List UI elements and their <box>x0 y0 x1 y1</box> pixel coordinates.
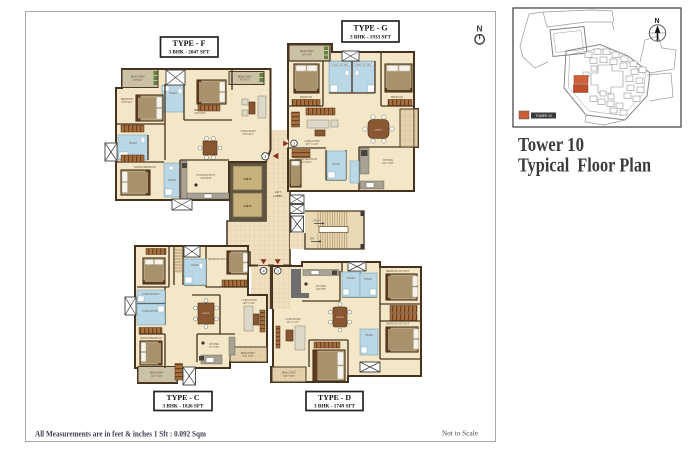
svg-text:N: N <box>654 18 659 25</box>
svg-text:MASTER BEDROOM: MASTER BEDROOM <box>140 337 162 340</box>
svg-text:BALCONY: BALCONY <box>241 351 255 355</box>
svg-text:10'0"X4'0": 10'0"X4'0" <box>302 55 312 57</box>
svg-text:LIVING ROOM: LIVING ROOM <box>241 300 256 302</box>
svg-text:10'0"X8'0": 10'0"X8'0" <box>316 289 326 291</box>
svg-text:TOILET: TOILET <box>364 279 372 281</box>
svg-text:TOILET 5'0"X8'0": TOILET 5'0"X8'0" <box>354 64 372 66</box>
svg-text:KITCHEN: KITCHEN <box>316 286 326 288</box>
svg-text:10'6"X11'6": 10'6"X11'6" <box>121 102 132 104</box>
svg-text:TOILET 8'0"X5'1": TOILET 8'0"X5'1" <box>142 311 160 313</box>
svg-text:13'6" X 15'0": 13'6" X 15'0" <box>243 303 256 305</box>
svg-text:TOILET: TOILET <box>191 265 199 267</box>
svg-text:LIVING ROOM: LIVING ROOM <box>285 319 300 321</box>
svg-text:TYPE - G: TYPE - G <box>353 23 387 32</box>
svg-text:10'0" X 4'0": 10'0" X 4'0" <box>283 376 295 378</box>
svg-text:TOILET: TOILET <box>332 164 340 166</box>
svg-text:BEDROOM 10'0"X11'6": BEDROOM 10'0"X11'6" <box>386 324 410 326</box>
svg-text:LIFT: LIFT <box>244 177 253 181</box>
svg-text:13'9"X12'1": 13'9"X12'1" <box>242 134 254 136</box>
svg-text:12'1" X 17'1": 12'1" X 17'1" <box>287 322 300 324</box>
svg-text:19 UP: 19 UP <box>313 220 320 223</box>
svg-text:Typical Floor Plan: Typical Floor Plan <box>518 155 651 177</box>
svg-text:BALCONY: BALCONY <box>238 75 252 79</box>
svg-text:Not to Scale: Not to Scale <box>442 429 479 438</box>
svg-text:DINING: DINING <box>336 317 344 319</box>
svg-text:LIVING ROOM: LIVING ROOM <box>240 131 255 133</box>
svg-text:TOILET: TOILET <box>168 180 176 182</box>
svg-text:4'0"X10'1": 4'0"X10'1" <box>133 80 143 82</box>
svg-text:TYPE - F: TYPE - F <box>173 39 206 48</box>
svg-text:7'0" X 8'0": 7'0" X 8'0" <box>209 347 219 349</box>
svg-text:BEDROOM: BEDROOM <box>391 97 403 99</box>
svg-text:BALCONY: BALCONY <box>282 371 296 375</box>
svg-text:DN: DN <box>310 238 314 241</box>
svg-text:BEDROOM: BEDROOM <box>300 97 312 99</box>
svg-text:4'0"X10'1": 4'0"X10'1" <box>240 80 250 82</box>
svg-text:TOILET: TOILET <box>347 278 355 280</box>
svg-text:DINING: DINING <box>202 313 210 315</box>
svg-text:3 BHK - 1933 SFT: 3 BHK - 1933 SFT <box>350 34 391 40</box>
svg-text:TOILET: TOILET <box>365 335 373 337</box>
svg-text:10'0" X 8'0": 10'0" X 8'0" <box>382 163 394 165</box>
svg-text:KITCHEN: KITCHEN <box>209 344 219 346</box>
svg-text:LIFT: LIFT <box>244 204 253 208</box>
svg-text:BEDROOM: BEDROOM <box>121 99 133 101</box>
svg-text:LOBBY: LOBBY <box>273 194 283 198</box>
svg-text:TOWER 10: TOWER 10 <box>535 114 551 118</box>
svg-text:LIVING ROOM: LIVING ROOM <box>304 141 319 143</box>
svg-text:N: N <box>476 24 482 34</box>
svg-text:TYPE - D: TYPE - D <box>318 393 351 402</box>
svg-text:BALCONY: BALCONY <box>300 49 314 53</box>
svg-text:11'0" X 4'6": 11'0" X 4'6" <box>242 356 253 358</box>
svg-text:DINING: DINING <box>375 130 383 132</box>
svg-text:KITCHEN: KITCHEN <box>383 160 393 162</box>
svg-text:3 BHK - 1749 SFT: 3 BHK - 1749 SFT <box>314 404 355 410</box>
svg-text:TOILET: TOILET <box>169 93 177 95</box>
svg-text:3 BHK - 1826 SFT: 3 BHK - 1826 SFT <box>163 404 204 410</box>
svg-text:12'0"X12'0": 12'0"X12'0" <box>300 162 312 164</box>
svg-text:BALCONY: BALCONY <box>150 371 164 375</box>
svg-text:TOILET 5'0"X8'0": TOILET 5'0"X8'0" <box>331 64 349 66</box>
svg-text:BALCONY: BALCONY <box>131 75 145 79</box>
svg-text:KITCHEN/UTILITY: KITCHEN/UTILITY <box>197 175 216 177</box>
svg-text:TOILET 8'0"X5'1": TOILET 8'0"X5'1" <box>142 294 160 296</box>
svg-text:BEDROOM 10'0"X11'0": BEDROOM 10'0"X11'0" <box>386 271 410 273</box>
svg-text:20'7" X 12'0": 20'7" X 12'0" <box>306 144 319 146</box>
svg-text:TOILET: TOILET <box>129 143 137 145</box>
svg-text:11'9"X8'10": 11'9"X8'10" <box>200 178 211 180</box>
svg-text:TYPE - C: TYPE - C <box>167 393 200 402</box>
svg-text:MASTER BEDROOM: MASTER BEDROOM <box>134 166 156 169</box>
svg-text:3 BHK - 2047 SFT: 3 BHK - 2047 SFT <box>169 50 210 56</box>
svg-text:10'6" X 4'0": 10'6" X 4'0" <box>151 376 163 378</box>
svg-text:Tower 10: Tower 10 <box>518 134 584 156</box>
svg-text:11'6"X10'0": 11'6"X10'0" <box>194 113 205 115</box>
svg-text:All Measurements are in feet &: All Measurements are in feet & inches 1 … <box>35 430 206 439</box>
